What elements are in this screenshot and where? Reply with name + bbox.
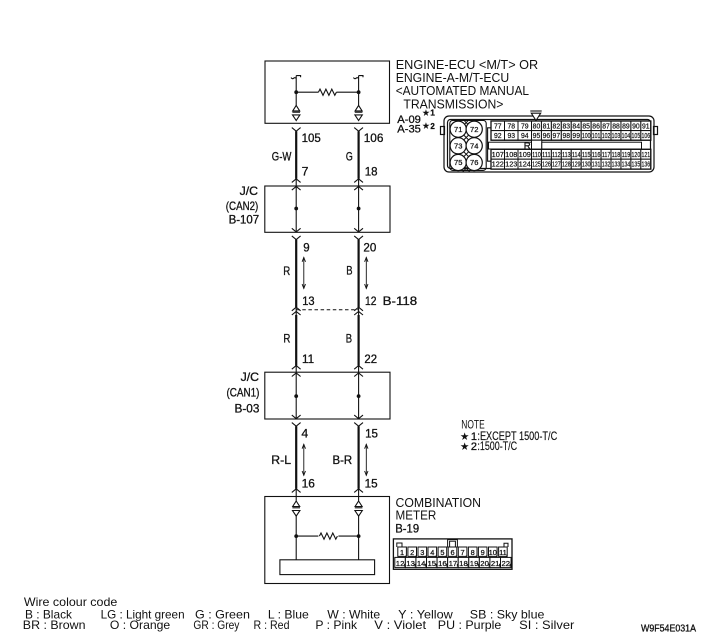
svg-text:B-107: B-107: [229, 213, 260, 227]
svg-text:86: 86: [592, 121, 600, 130]
svg-text:B: B: [346, 263, 352, 277]
svg-text:82: 82: [553, 121, 561, 130]
svg-text:108: 108: [505, 150, 517, 159]
svg-text:103: 103: [612, 131, 621, 140]
svg-text:2: 2: [430, 122, 435, 131]
svg-text:★: ★: [460, 441, 470, 451]
svg-text:19: 19: [470, 559, 479, 568]
svg-text:135: 135: [632, 160, 641, 169]
svg-text:7: 7: [302, 165, 309, 179]
svg-text:93: 93: [507, 131, 515, 140]
svg-text:B-118: B-118: [383, 294, 418, 308]
svg-text:20: 20: [480, 559, 489, 568]
svg-text:116: 116: [592, 150, 601, 159]
svg-text:104: 104: [622, 131, 631, 140]
svg-text:98: 98: [562, 131, 570, 140]
svg-text:4: 4: [301, 427, 308, 441]
svg-text:22: 22: [364, 352, 377, 366]
svg-text:W9F54E031A: W9F54E031A: [641, 624, 696, 635]
svg-text:R : Red: R : Red: [254, 618, 290, 632]
svg-text:9: 9: [303, 241, 310, 255]
svg-text:90: 90: [632, 121, 640, 130]
svg-text:O : Orange: O : Orange: [110, 618, 171, 632]
svg-text:TRANSMISSION>: TRANSMISSION>: [403, 96, 503, 111]
svg-text:★: ★: [460, 431, 470, 441]
svg-text:21: 21: [491, 559, 500, 568]
svg-text:76: 76: [470, 158, 478, 167]
svg-text:(CAN2): (CAN2): [226, 199, 259, 213]
svg-text:85: 85: [582, 121, 590, 130]
svg-text:★: ★: [422, 109, 430, 118]
svg-text:12: 12: [365, 294, 377, 308]
svg-text:(CAN1): (CAN1): [227, 385, 260, 399]
svg-text:15: 15: [365, 476, 378, 490]
svg-text:122: 122: [492, 160, 504, 169]
svg-text:123: 123: [505, 160, 517, 169]
svg-text:118: 118: [612, 150, 621, 159]
svg-text:112: 112: [552, 150, 561, 159]
svg-text:111: 111: [542, 150, 551, 159]
svg-text::1500-T/C: :1500-T/C: [477, 439, 517, 453]
svg-text:71: 71: [454, 125, 462, 134]
svg-text:99: 99: [572, 131, 580, 140]
svg-text:SI : Silver: SI : Silver: [519, 618, 574, 632]
svg-text:129: 129: [572, 160, 581, 169]
svg-text:A-35: A-35: [397, 123, 421, 135]
svg-text:72: 72: [470, 125, 478, 134]
svg-text:18: 18: [459, 559, 468, 568]
svg-text:17: 17: [449, 559, 458, 568]
svg-text:128: 128: [562, 160, 571, 169]
svg-text:121: 121: [641, 150, 650, 159]
svg-text:6: 6: [450, 548, 454, 557]
svg-text:★: ★: [422, 122, 430, 131]
svg-text:9: 9: [481, 548, 485, 557]
svg-text:13: 13: [406, 559, 415, 568]
svg-text:2: 2: [471, 441, 477, 453]
svg-text:79: 79: [521, 121, 529, 130]
svg-text:P : Pink: P : Pink: [315, 618, 357, 632]
svg-text:124: 124: [519, 160, 531, 169]
svg-text:PU : Purple: PU : Purple: [438, 618, 502, 632]
svg-text:105: 105: [302, 131, 322, 145]
svg-text:136: 136: [641, 160, 650, 169]
svg-text:20: 20: [363, 241, 376, 255]
svg-text:7: 7: [461, 548, 465, 557]
svg-text:18: 18: [365, 165, 378, 179]
svg-text:1: 1: [430, 108, 435, 117]
svg-text:125: 125: [532, 160, 541, 169]
svg-text:110: 110: [532, 150, 541, 159]
svg-text:75: 75: [454, 158, 462, 167]
svg-text:11: 11: [302, 352, 314, 366]
svg-text:15: 15: [428, 559, 437, 568]
svg-text:14: 14: [417, 559, 426, 568]
svg-text:91: 91: [642, 121, 650, 130]
svg-text:134: 134: [622, 160, 631, 169]
svg-text:119: 119: [622, 150, 631, 159]
svg-text:J/C: J/C: [241, 370, 260, 384]
svg-text:102: 102: [602, 131, 611, 140]
svg-text:10: 10: [489, 548, 497, 557]
svg-text:15: 15: [365, 427, 378, 441]
svg-text:8: 8: [471, 548, 475, 557]
svg-text:13: 13: [302, 294, 315, 308]
svg-text:B: B: [346, 332, 352, 346]
svg-text:11: 11: [499, 548, 507, 557]
svg-text:5: 5: [440, 548, 444, 557]
svg-text:106: 106: [364, 131, 384, 145]
svg-text:3: 3: [420, 548, 424, 557]
svg-text:113: 113: [562, 150, 571, 159]
svg-text:105: 105: [632, 131, 641, 140]
svg-text:B-03: B-03: [235, 401, 260, 415]
svg-text:127: 127: [552, 160, 561, 169]
svg-text:97: 97: [553, 131, 561, 140]
svg-text:83: 83: [562, 121, 570, 130]
svg-text:100: 100: [582, 131, 591, 140]
svg-text:94: 94: [521, 131, 529, 140]
svg-text:115: 115: [582, 150, 591, 159]
svg-text:84: 84: [572, 121, 580, 130]
svg-text:101: 101: [592, 131, 601, 140]
svg-text:114: 114: [572, 150, 581, 159]
svg-text:109: 109: [519, 150, 531, 159]
svg-text:V : Violet: V : Violet: [374, 618, 427, 632]
svg-text:131: 131: [592, 160, 601, 169]
svg-text:120: 120: [632, 150, 641, 159]
svg-text:B-R: B-R: [333, 453, 353, 467]
svg-text:77: 77: [494, 121, 502, 130]
svg-text:G-W: G-W: [272, 149, 292, 163]
svg-text:G: G: [346, 149, 353, 163]
svg-text:132: 132: [602, 160, 611, 169]
svg-text:16: 16: [438, 559, 447, 568]
svg-text:2: 2: [410, 548, 414, 557]
svg-text:107: 107: [492, 150, 504, 159]
svg-text:89: 89: [622, 121, 630, 130]
svg-text:130: 130: [582, 160, 591, 169]
svg-text:96: 96: [543, 131, 551, 140]
svg-text:78: 78: [507, 121, 515, 130]
svg-text:81: 81: [543, 121, 551, 130]
svg-text:87: 87: [602, 121, 610, 130]
svg-text:16: 16: [302, 476, 316, 490]
svg-text:80: 80: [533, 121, 541, 130]
svg-text:R-L: R-L: [271, 453, 291, 467]
svg-text:73: 73: [454, 141, 462, 150]
svg-text:GR : Grey: GR : Grey: [193, 618, 239, 632]
svg-text:106: 106: [641, 131, 650, 140]
svg-text:133: 133: [612, 160, 621, 169]
svg-text:R: R: [283, 332, 290, 346]
svg-text:92: 92: [494, 131, 502, 140]
svg-text:4: 4: [430, 548, 434, 557]
svg-text:1: 1: [400, 548, 404, 557]
svg-text:22: 22: [502, 559, 511, 568]
svg-text:88: 88: [612, 121, 620, 130]
svg-text:12: 12: [396, 559, 405, 568]
svg-text:B-19: B-19: [395, 522, 419, 536]
svg-text:117: 117: [602, 150, 611, 159]
svg-text:R: R: [283, 264, 290, 278]
svg-text:J/C: J/C: [240, 184, 259, 198]
svg-text:74: 74: [470, 141, 478, 150]
svg-text:METER: METER: [396, 509, 437, 523]
svg-text:95: 95: [533, 131, 541, 140]
svg-text:BR : Brown: BR : Brown: [23, 618, 86, 632]
svg-text:126: 126: [542, 160, 551, 169]
